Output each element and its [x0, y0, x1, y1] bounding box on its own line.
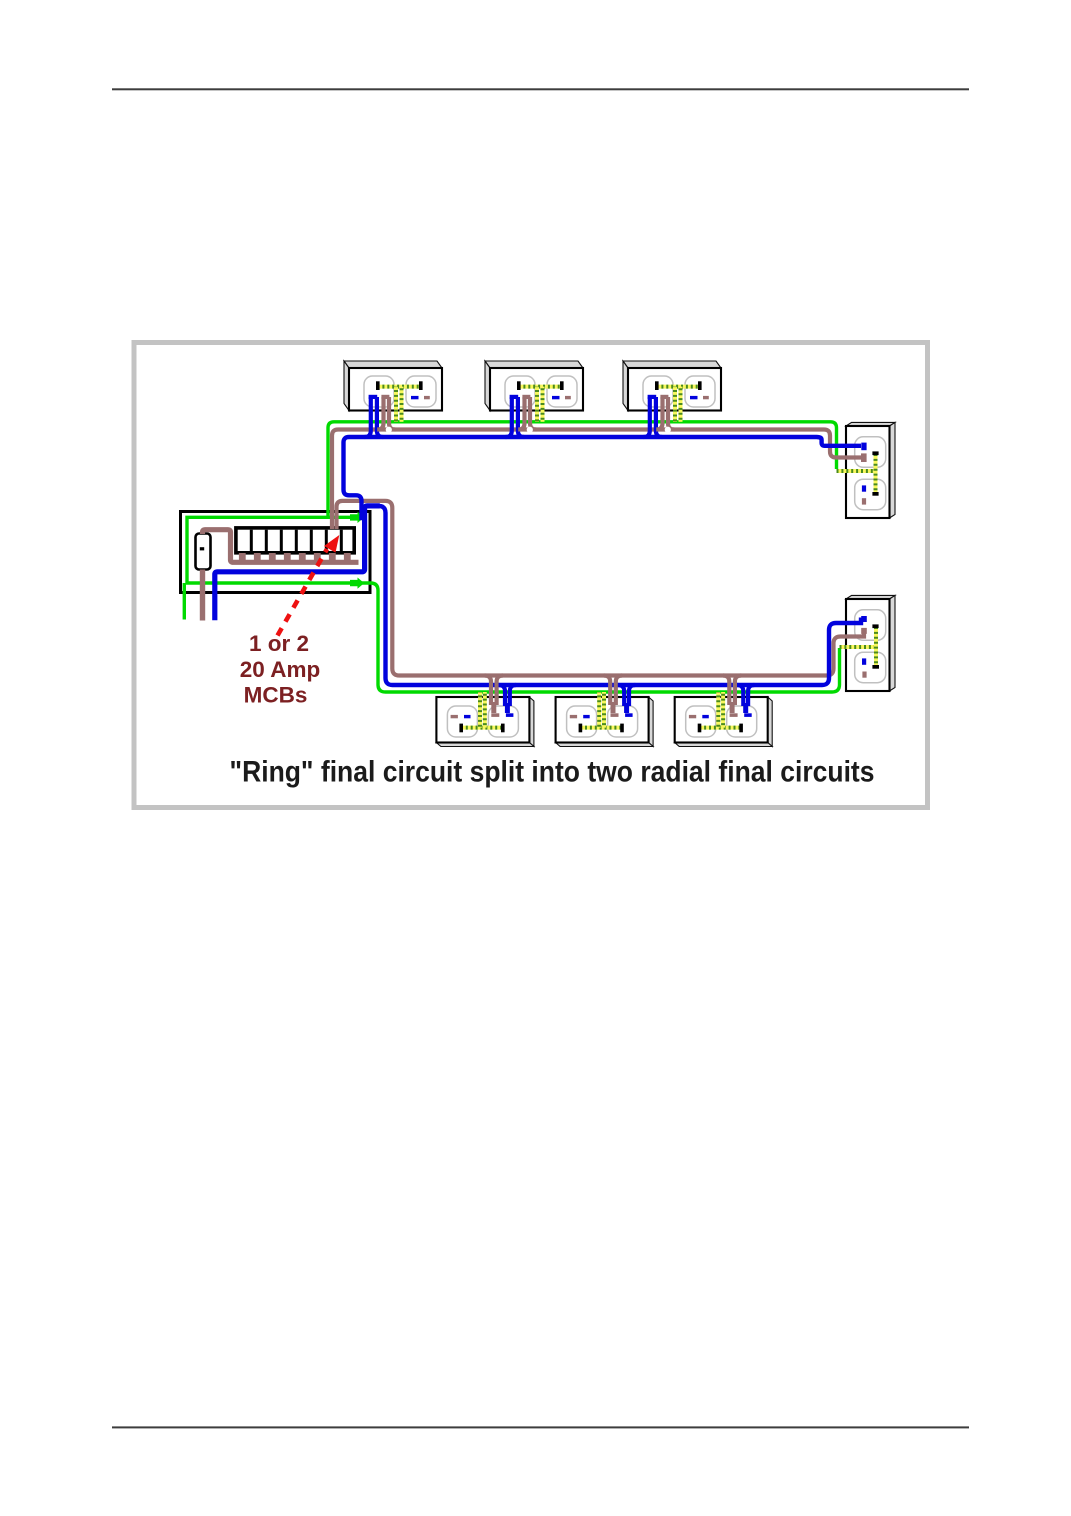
svg-text:MCBs: MCBs	[244, 683, 308, 708]
svg-text:1 or 2: 1 or 2	[249, 631, 309, 656]
svg-text:"Ring" final circuit split int: "Ring" final circuit split into two radi…	[230, 756, 875, 789]
svg-text:20 Amp: 20 Amp	[240, 657, 320, 682]
